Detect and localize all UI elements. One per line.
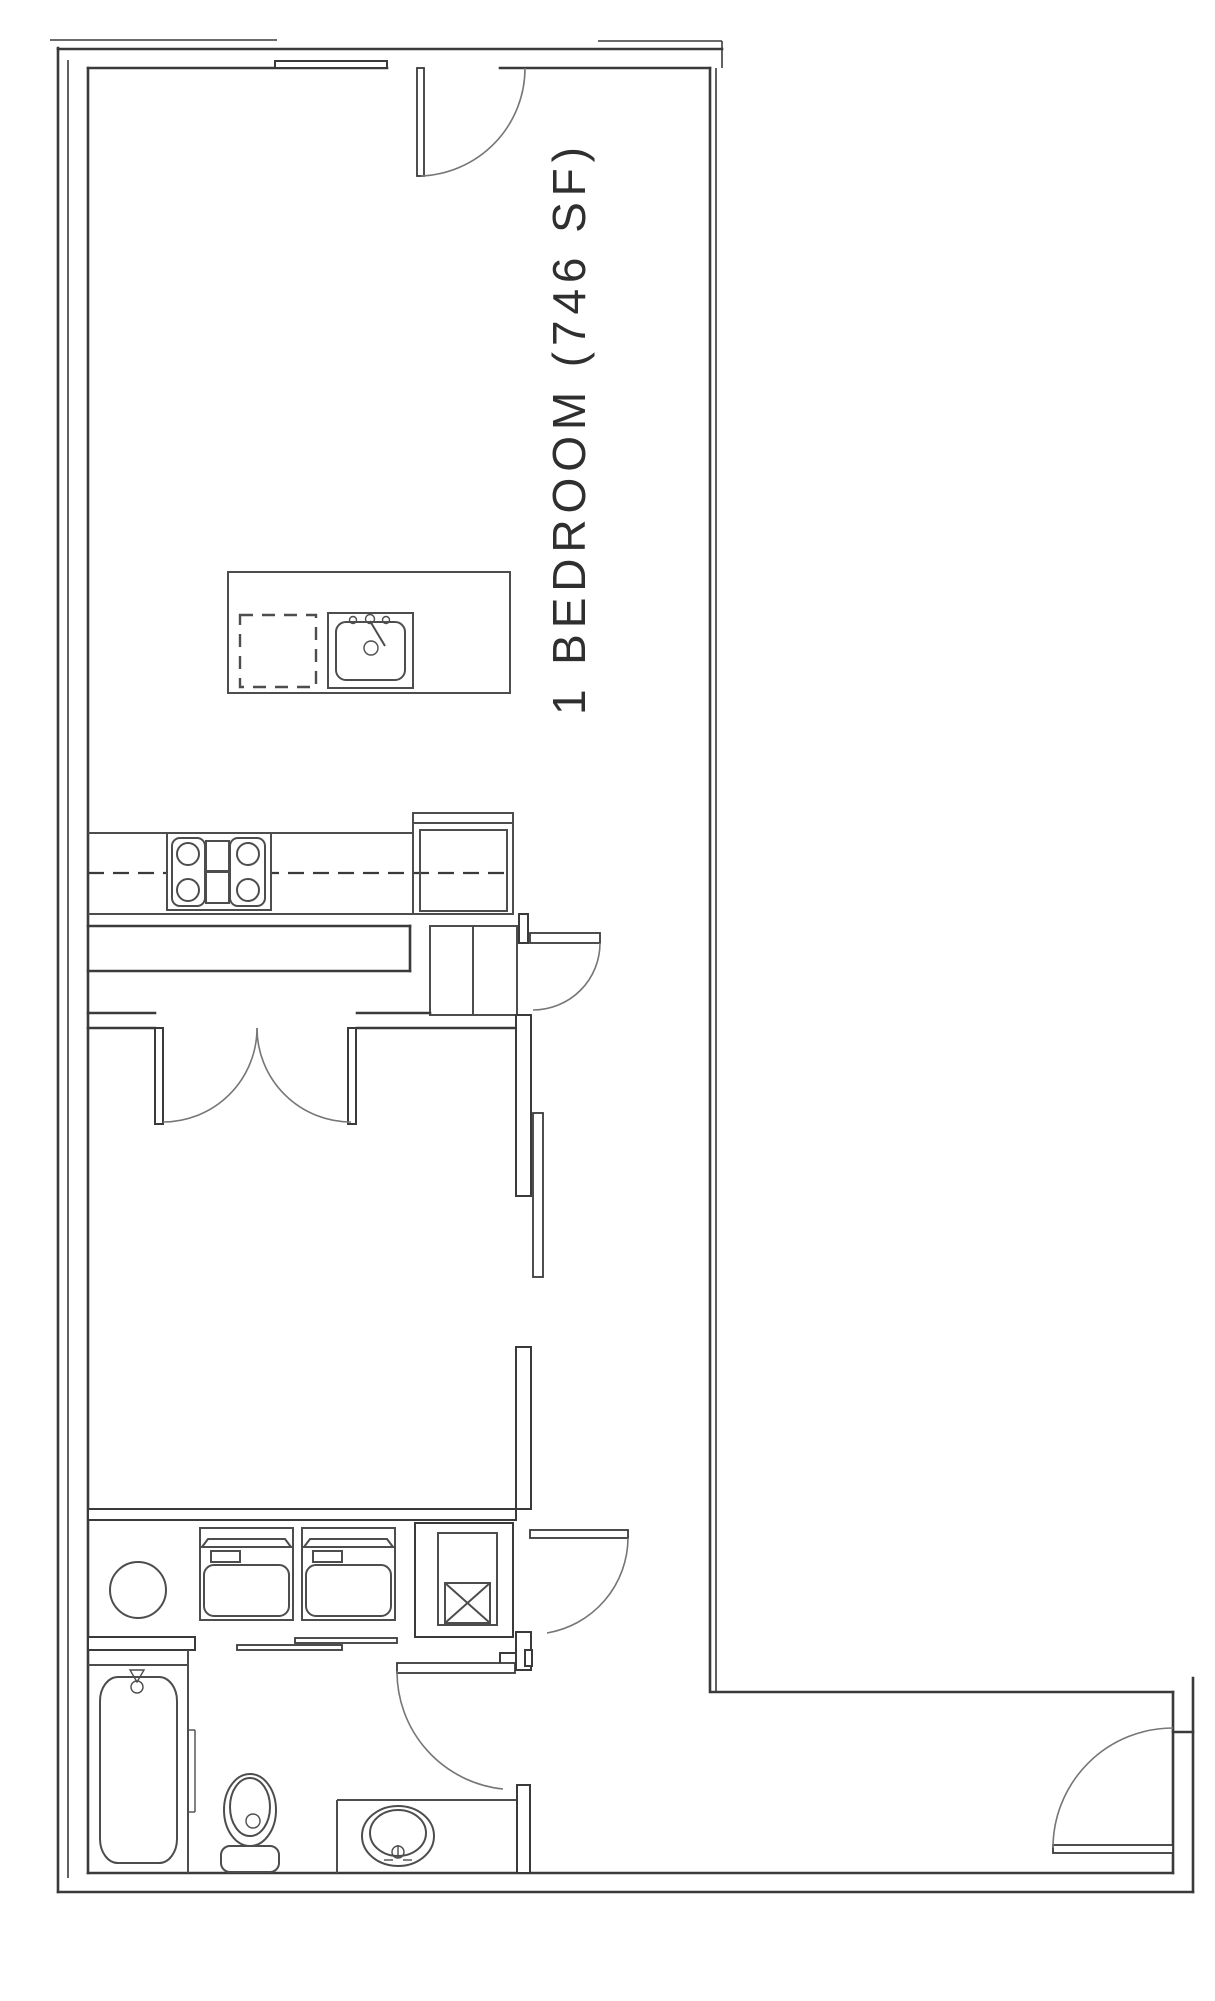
fridge-outline [413,813,513,914]
double-door-jamb-right [348,1028,356,1124]
laundry-room [88,1509,516,1650]
laundry-bypass-door-front [237,1645,342,1650]
bathroom [88,1650,532,1873]
dryer-control-panel [313,1551,342,1562]
unit-entry-door-arc [1053,1728,1173,1848]
washer-lid-line [202,1539,291,1547]
shaft-outline [415,1523,513,1637]
plan-title: 1 BEDROOM (746 SF) [543,145,595,715]
hall-laundry-door [500,1530,628,1670]
double-door-jamb-left [155,1028,163,1124]
exterior-walls [50,40,1193,1892]
laundry-bypass-door-back [295,1638,397,1643]
range-center-upper [206,841,229,871]
hall-laundry-door-leaf [530,1530,628,1538]
entry-top-door-leaf [417,68,424,176]
entry-door-top [275,61,525,176]
burner-plate-left [172,838,205,906]
vanity-sink [337,1800,517,1873]
unit-entry-door-leaf [1053,1845,1173,1853]
bedroom-right-wall [516,1015,543,1509]
refrigerator [413,813,513,914]
entry-top-door-swing-arc [421,68,525,176]
toilet-tank [221,1846,279,1872]
dryer [302,1528,395,1620]
wall-stub-fridge [519,914,528,943]
bathroom-door-arc [397,1671,503,1789]
laundry-top-wall [88,1509,516,1520]
bathroom-door [397,1650,532,1873]
utility-shaft [415,1523,513,1637]
bathroom-door-leaf [397,1663,515,1673]
washer [200,1528,293,1620]
bathroom-wall-stub [517,1785,530,1873]
toilet [221,1774,279,1872]
hall-closet-door [530,933,600,1010]
bedroom-wall-lower [516,1347,531,1509]
washer-drum [204,1565,289,1616]
dryer-drum [306,1565,391,1616]
bathroom-door-jamb [525,1650,532,1666]
dryer-body [302,1528,395,1620]
kitchen-island [228,572,510,693]
floor-plan-page: 1 BEDROOM (746 SF) [0,0,1215,2001]
washer-control-panel [211,1551,240,1562]
double-door-arc-left [163,1028,257,1122]
dryer-lid-line [304,1539,393,1547]
bedroom-sliding-door-panel [533,1113,543,1277]
hall-closet-door-arc [533,943,600,1010]
range-cooktop [167,833,271,910]
double-door-arc-right [257,1028,351,1122]
unit-entry-door [1053,1728,1173,1853]
floor-plan-drawing: 1 BEDROOM (746 SF) [0,0,1215,2001]
bedroom-wall-upper [516,1015,531,1196]
bathtub [88,1650,195,1873]
laundry-sink-circle [110,1562,166,1618]
kitchen-counter-run [88,813,513,914]
laundry-bottom-wall [88,1637,195,1650]
hall-laundry-door-arc [547,1538,628,1633]
interior-walls-kitchen [88,914,528,971]
burner-plate-right [230,838,265,906]
entry-top-header [275,61,387,68]
pantry-closet [430,926,517,1015]
range-center-lower [206,872,229,903]
fridge-inner [420,830,507,911]
tub-basin [100,1677,177,1863]
hall-closet-door-leaf [530,933,600,943]
washer-body [200,1528,293,1620]
bedroom-double-doors [88,1013,516,1124]
